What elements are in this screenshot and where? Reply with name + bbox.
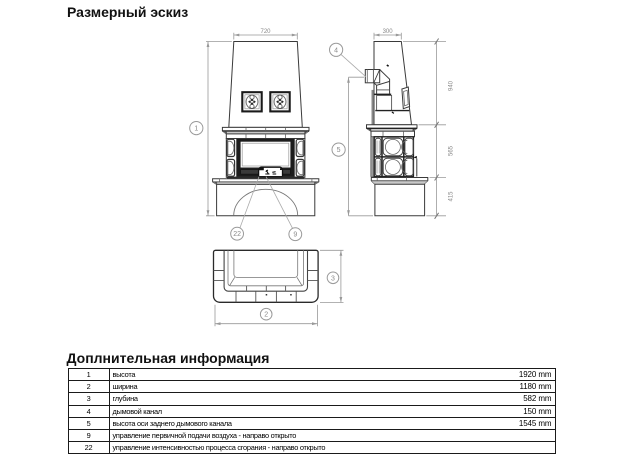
svg-text:415: 415 — [449, 191, 455, 202]
svg-text:300: 300 — [383, 29, 394, 35]
svg-text:22: 22 — [233, 231, 241, 238]
svg-text:1: 1 — [194, 126, 198, 133]
svg-text:3: 3 — [331, 275, 335, 282]
svg-text:9: 9 — [293, 232, 297, 239]
svg-text:2: 2 — [264, 312, 268, 319]
svg-text:5: 5 — [337, 147, 341, 154]
svg-text:720: 720 — [260, 29, 271, 35]
svg-text:565: 565 — [449, 145, 455, 156]
svg-text:4: 4 — [334, 47, 338, 54]
svg-text:940: 940 — [449, 80, 455, 91]
